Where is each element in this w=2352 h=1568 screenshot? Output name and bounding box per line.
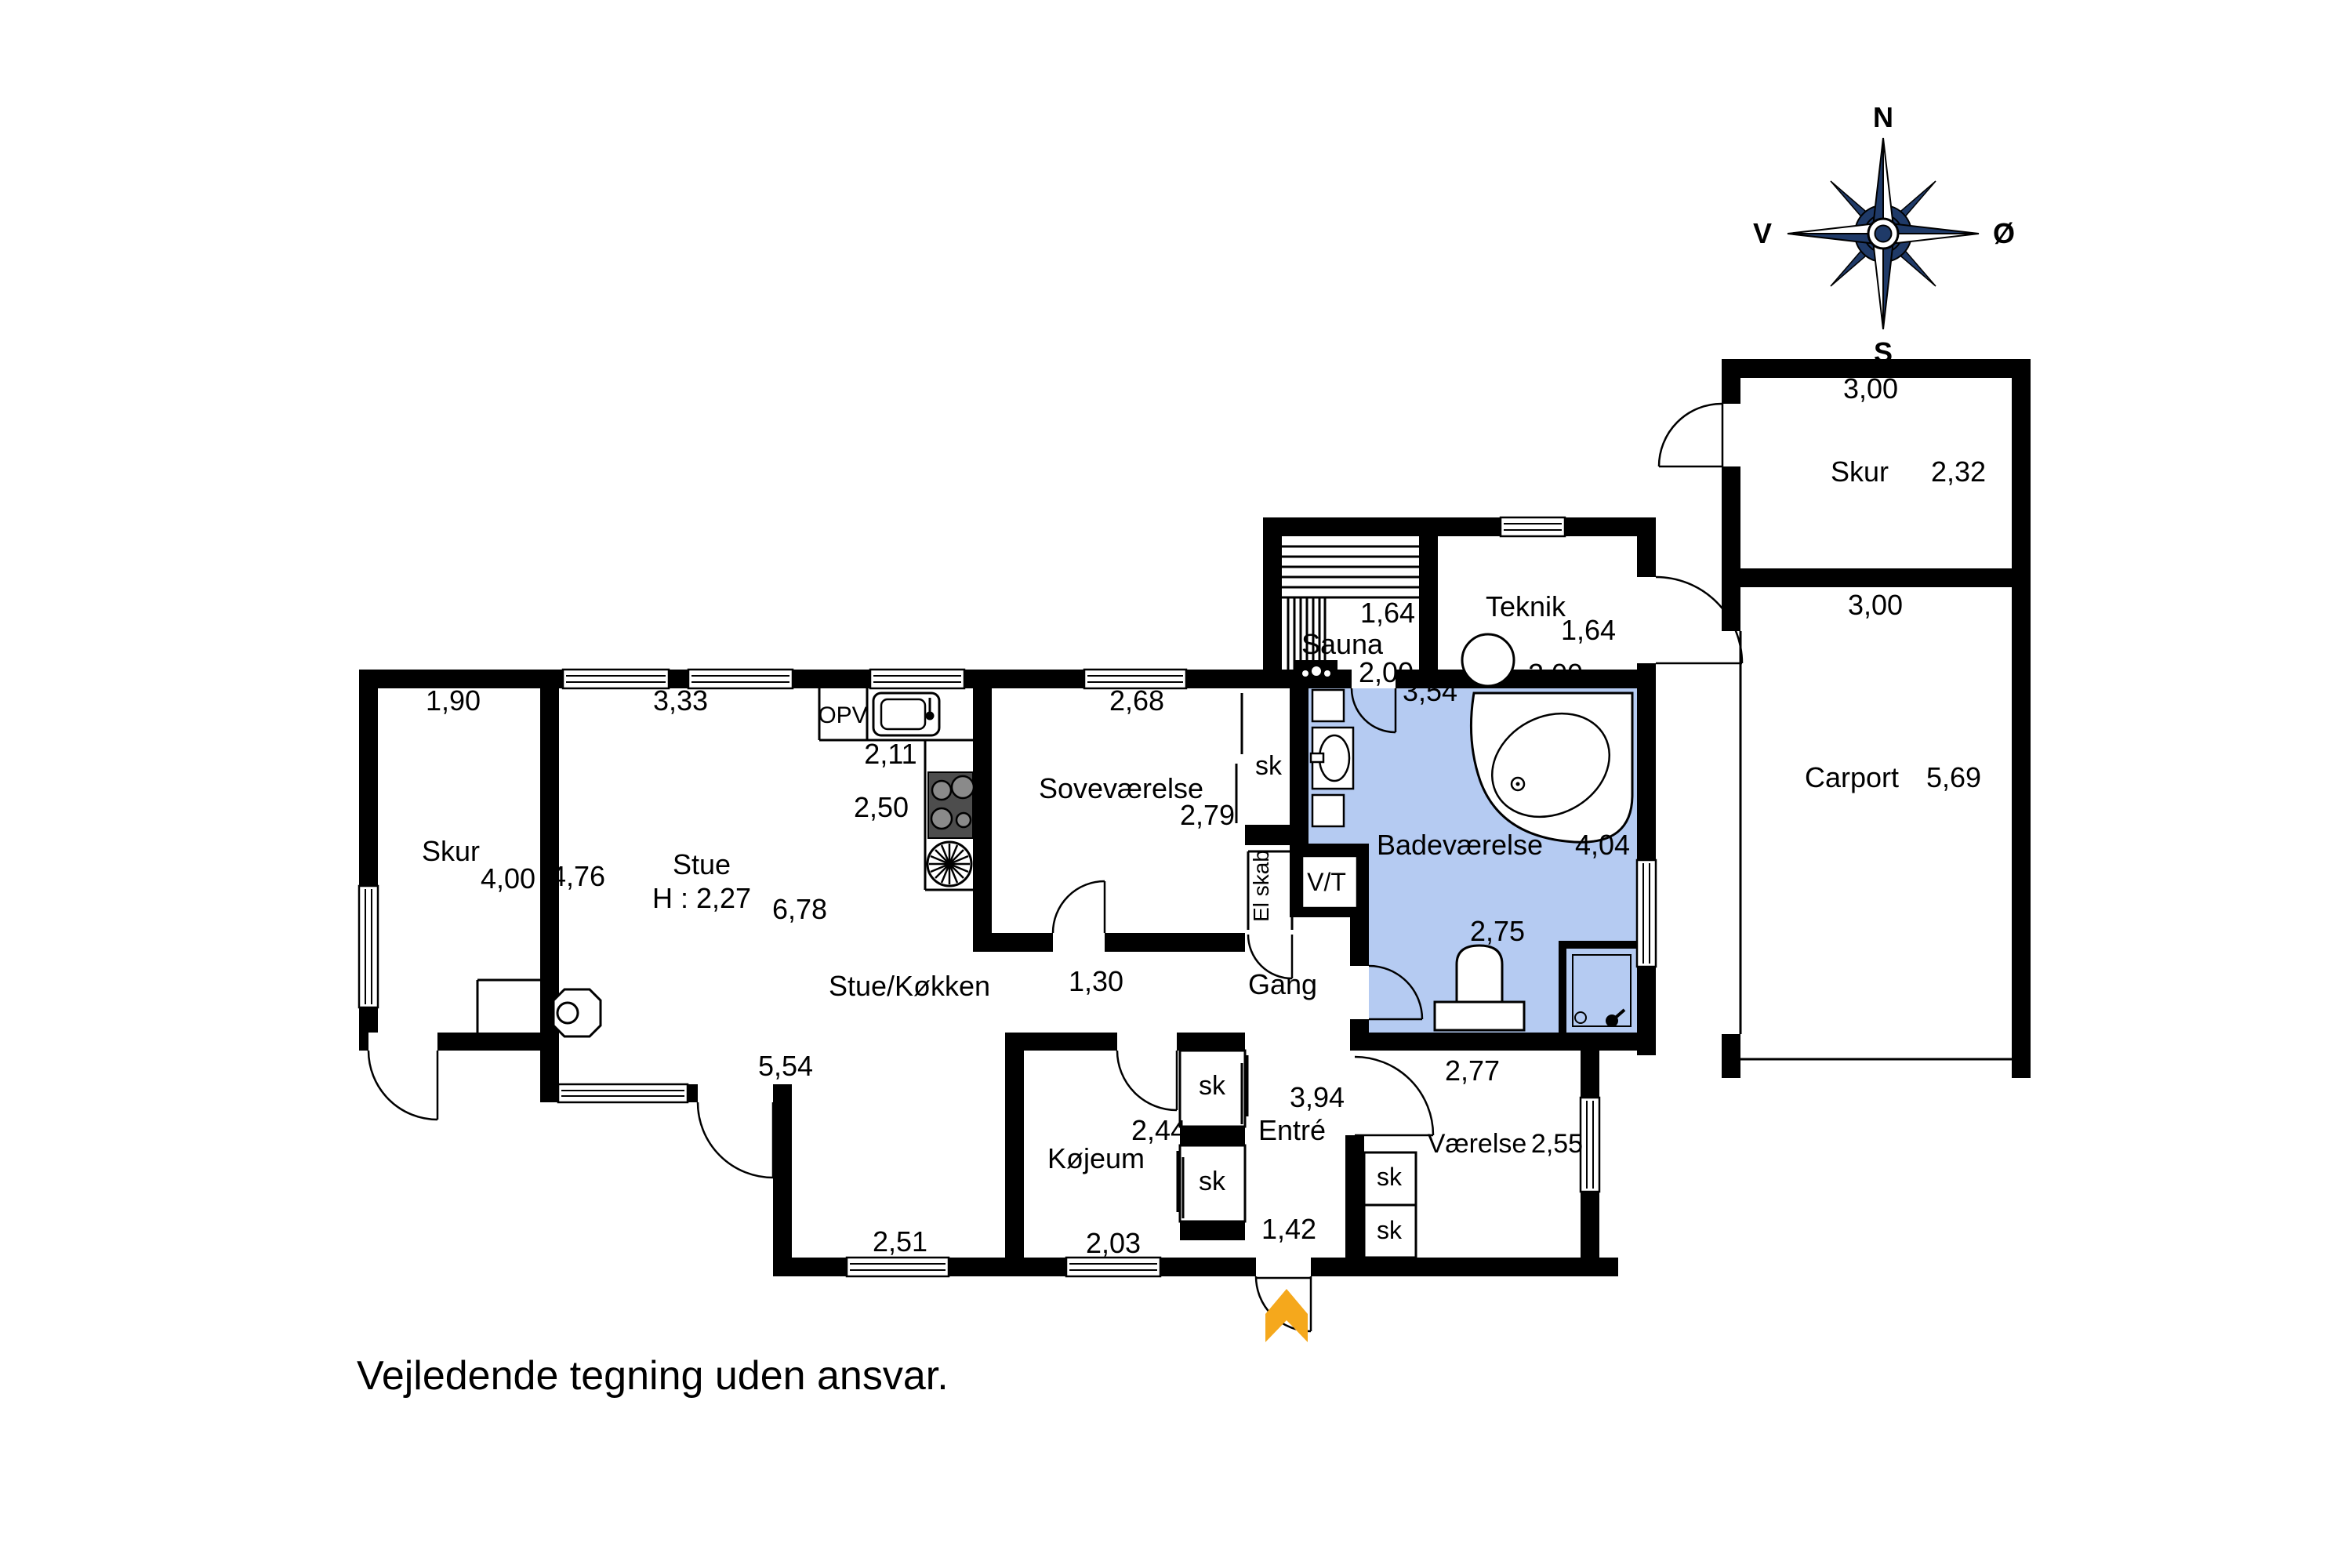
sauna-heater-icon xyxy=(1295,660,1338,687)
badevaerelse-bottom-dim: 2,75 xyxy=(1470,915,1525,947)
badevaerelse-name: Badeværelse xyxy=(1377,829,1543,861)
carport-top-dim: 3,00 xyxy=(1848,589,1903,621)
floor-plan-svg: 1,90Skur4,003,334,76StueH : 2,276,78OPV2… xyxy=(0,0,2352,1568)
stue-ceiling-height: H : 2,27 xyxy=(652,882,751,914)
teknik-window xyxy=(1501,517,1565,536)
kitchen-top-dim: 2,11 xyxy=(864,738,916,770)
compass-label-n: N xyxy=(1873,101,1893,133)
teknik-right-dim: 1,64 xyxy=(1561,614,1616,646)
entre-sk-1-label: sk xyxy=(1377,1163,1403,1191)
extractor-fan-icon xyxy=(927,842,971,886)
disclaimer-text: Vejledende tegning uden ansvar. xyxy=(357,1353,949,1399)
entre-door-dim: 1,42 xyxy=(1261,1213,1316,1245)
skur-annex-width-dim: 1,90 xyxy=(426,684,481,717)
compass-label-v: V xyxy=(1753,217,1772,249)
sauna-name: Sauna xyxy=(1301,628,1384,660)
kitchen-mid-dim: 2,50 xyxy=(854,791,909,823)
koejeum-window xyxy=(1066,1258,1160,1276)
badevaerelse-top-dim: 3,54 xyxy=(1403,675,1457,707)
sovevaerelse-door-dim: 1,30 xyxy=(1069,965,1123,997)
koekken-window xyxy=(870,670,964,688)
koekken-bottom-dim: 2,51 xyxy=(873,1225,927,1258)
stue-koekken-name: Stue/Køkken xyxy=(829,970,990,1002)
entre-name: Entré xyxy=(1258,1114,1326,1146)
koejeum-door-dim: 2,44 xyxy=(1131,1114,1186,1146)
stue-right-dim: 6,78 xyxy=(772,893,827,925)
sovevaerelse-sk-label: sk xyxy=(1255,751,1283,781)
kitchen-sink-icon xyxy=(873,693,939,735)
skur2-right-dim: 2,32 xyxy=(1931,456,1986,488)
koejeum-bottom-dim: 2,03 xyxy=(1086,1227,1141,1259)
vaerelse-name: Værelse xyxy=(1428,1129,1527,1159)
vt-label: V/T xyxy=(1307,868,1346,896)
teknik-bottom-dim: 2,00 xyxy=(1528,658,1583,690)
stue-bottom-window xyxy=(558,1084,688,1102)
compass-label-s: S xyxy=(1874,336,1893,368)
koekken-bottom-window xyxy=(847,1258,949,1276)
compass-label-oe: Ø xyxy=(1993,217,2015,249)
water-heater-icon xyxy=(1462,634,1514,686)
skur-annex-window xyxy=(359,886,378,1007)
stue-top-dim: 3,33 xyxy=(653,684,708,717)
koejeum-sk-1-label: sk xyxy=(1199,1071,1226,1101)
entre-top-dim: 3,94 xyxy=(1290,1081,1345,1113)
gang-name: Gang xyxy=(1248,968,1317,1000)
sauna-right-dim: 1,64 xyxy=(1360,597,1415,629)
koejeum-name: Køjeum xyxy=(1047,1142,1145,1174)
skur2-name: Skur xyxy=(1831,456,1889,488)
vaerelse-right-dim: 2,55 xyxy=(1531,1129,1583,1159)
stue-bottom-dim: 5,54 xyxy=(758,1050,813,1082)
stue-left-dim: 4,76 xyxy=(550,860,605,892)
badevaerelse-width-dim: 2,77 xyxy=(1445,1054,1500,1087)
kitchen-opv-label: OPV xyxy=(818,702,867,728)
koejeum-sk-2-label: sk xyxy=(1199,1167,1226,1196)
vaerelse-window xyxy=(1581,1098,1599,1192)
skur-annex-depth-dim: 4,00 xyxy=(481,862,535,895)
skur-annex-name: Skur xyxy=(422,835,480,867)
sovevaerelse-top-dim: 2,68 xyxy=(1109,684,1164,717)
badevaerelse-window xyxy=(1637,860,1656,967)
sovevaerelse-right-dim: 2,79 xyxy=(1180,799,1235,831)
badevaerelse-right-dim: 4,04 xyxy=(1575,829,1630,861)
skur2-top-dim: 3,00 xyxy=(1843,372,1898,405)
sovevaerelse-name: Soveværelse xyxy=(1039,772,1203,804)
carport-name: Carport xyxy=(1805,761,1899,793)
teknik-name: Teknik xyxy=(1486,590,1566,622)
stue-name: Stue xyxy=(673,848,731,880)
carport-right-dim: 5,69 xyxy=(1926,761,1981,793)
stove-icon xyxy=(928,772,974,838)
el-skab-label: El skab xyxy=(1249,850,1273,922)
entre-sk-2-label: sk xyxy=(1377,1216,1403,1244)
wood-stove-icon xyxy=(554,989,601,1036)
